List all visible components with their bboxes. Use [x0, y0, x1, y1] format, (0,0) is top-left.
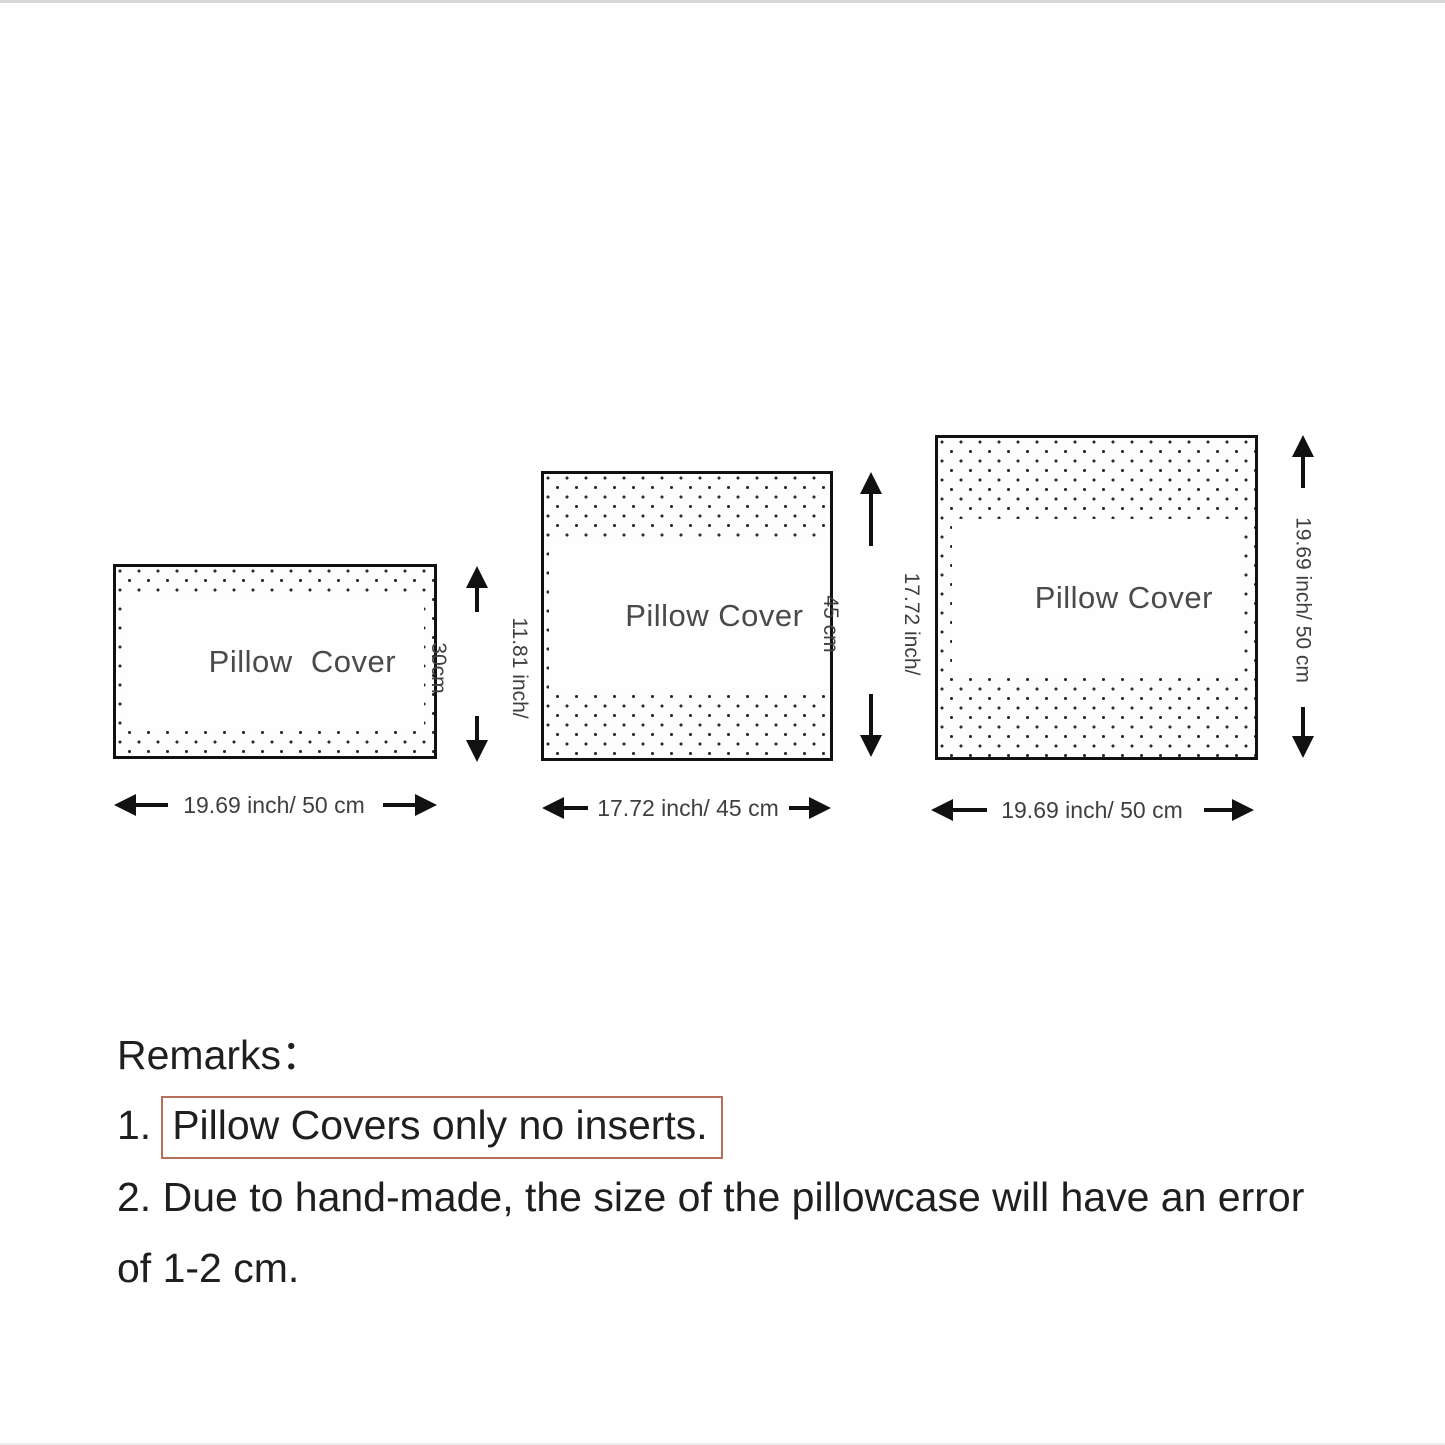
remark-item-2-continued: of 1-2 cm. — [117, 1244, 299, 1293]
width-dimension-label: 17.72 inch/ 45 cm — [597, 793, 779, 823]
arrow-up-icon — [858, 472, 884, 546]
pillow-box-large: Pillow Cover — [935, 435, 1258, 760]
height-label-line1: 11.81 inch/ — [506, 617, 533, 718]
top-edge-line — [0, 0, 1445, 3]
arrow-left-icon — [931, 797, 987, 823]
arrow-down-icon — [464, 716, 490, 762]
arrow-right-icon — [1204, 797, 1254, 823]
arrow-down-icon — [1290, 707, 1316, 758]
height-label-line2: 45 cm — [817, 573, 844, 676]
arrow-down-icon — [858, 694, 884, 757]
height-dimension-label: 19.69 inch/ 50 cm — [1236, 517, 1371, 683]
height-label-line1: 17.72 inch/ — [898, 573, 925, 676]
arrow-right-icon — [383, 792, 437, 818]
arrow-up-icon — [464, 566, 490, 612]
remark-item-2: 2. Due to hand-made, the size of the pil… — [117, 1173, 1304, 1222]
height-label-line2: 30cm — [425, 617, 452, 718]
remarks-title: Remarks： — [117, 1031, 322, 1080]
pillow-label-text: Pillow Cover — [1035, 580, 1213, 615]
pillow-label-text: Pillow Cover — [209, 644, 396, 679]
arrow-up-icon — [1290, 435, 1316, 488]
height-label-line1: 19.69 inch/ 50 cm — [1290, 517, 1317, 683]
arrow-left-icon — [114, 792, 168, 818]
pillow-size-chart: Pillow Cover 11.81 inch/ 30cm 19.69 inch… — [0, 0, 1445, 1445]
arrow-right-icon — [789, 795, 831, 821]
arrow-left-icon — [542, 795, 588, 821]
width-dimension-label: 19.69 inch/ 50 cm — [183, 790, 365, 820]
remark-item-1: 1.Pillow Covers only no inserts. — [117, 1096, 723, 1159]
remark-item-1-number: 1. — [117, 1102, 151, 1148]
pillow-label: Pillow Cover — [952, 519, 1241, 677]
width-dimension-label: 19.69 inch/ 50 cm — [1001, 795, 1183, 825]
remark-item-1-highlighted: Pillow Covers only no inserts. — [161, 1096, 722, 1159]
